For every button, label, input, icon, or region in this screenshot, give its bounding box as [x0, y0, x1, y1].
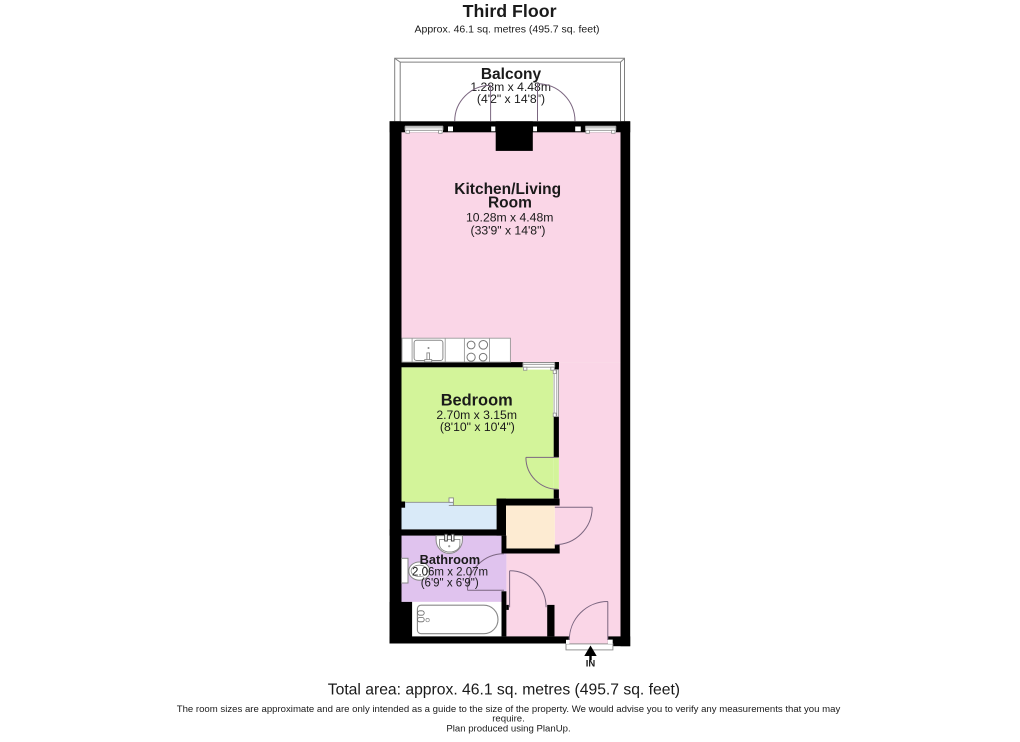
svg-text:Room: Room — [488, 195, 532, 212]
svg-text:Approx. 46.1 sq. metres (495.7: Approx. 46.1 sq. metres (495.7 sq. feet) — [414, 23, 599, 35]
svg-text:Bedroom: Bedroom — [441, 391, 513, 409]
svg-text:Bathroom: Bathroom — [420, 552, 480, 567]
svg-text:Plan produced using PlanUp.: Plan produced using PlanUp. — [446, 724, 570, 735]
svg-text:10.28m x 4.48m: 10.28m x 4.48m — [466, 211, 553, 225]
svg-text:Third Floor: Third Floor — [463, 1, 557, 21]
svg-text:IN: IN — [586, 659, 596, 670]
svg-text:Total area: approx. 46.1 sq. m: Total area: approx. 46.1 sq. metres (495… — [328, 682, 680, 699]
svg-text:(33'9" x 14'8"): (33'9" x 14'8") — [471, 224, 546, 238]
svg-text:(6'9" x 6'9"): (6'9" x 6'9") — [421, 578, 479, 590]
svg-text:(4'2" x 14'8"): (4'2" x 14'8") — [477, 92, 545, 106]
svg-text:(8'10" x 10'4"): (8'10" x 10'4") — [440, 420, 515, 434]
